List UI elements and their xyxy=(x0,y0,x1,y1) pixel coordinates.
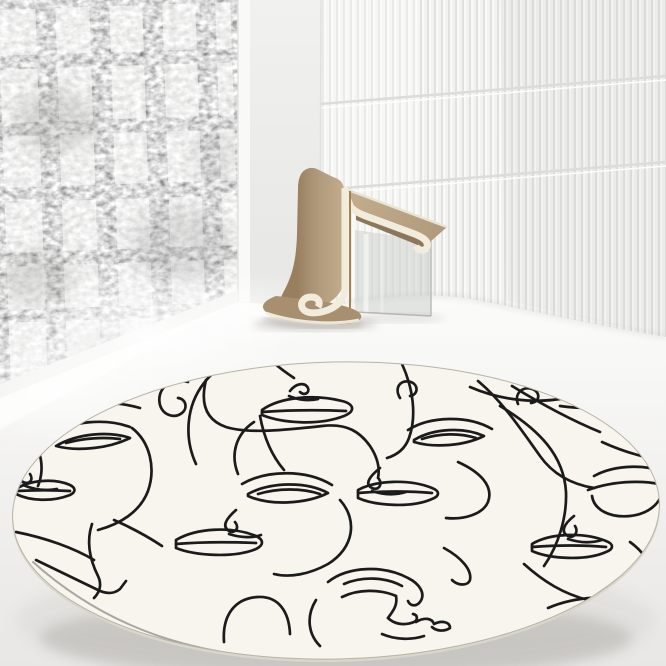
scene-canvas xyxy=(0,0,666,666)
product-photo xyxy=(0,0,666,666)
pane xyxy=(164,63,199,117)
pane xyxy=(0,9,37,56)
pane xyxy=(162,3,197,50)
pane xyxy=(55,7,91,54)
window-frame-right xyxy=(238,0,250,302)
pane xyxy=(109,5,144,52)
pane xyxy=(5,202,44,253)
lip-line xyxy=(16,490,70,491)
pane xyxy=(217,62,234,115)
pane xyxy=(114,132,149,184)
pane xyxy=(111,65,146,119)
pane xyxy=(62,200,98,251)
pane xyxy=(215,2,232,48)
